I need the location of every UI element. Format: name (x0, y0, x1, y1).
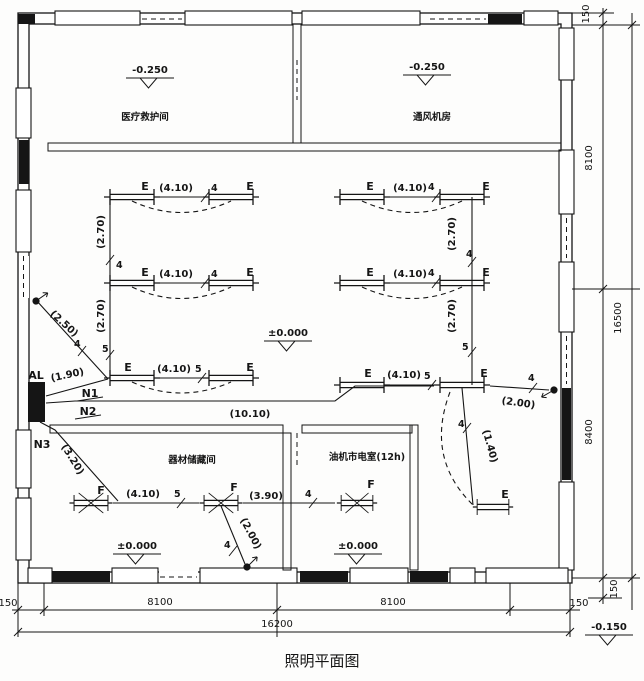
room-name: 医疗救护间 (121, 111, 169, 123)
wire-label: (4.10) (387, 370, 421, 381)
wire-label: (4.10) (393, 269, 427, 280)
dim-value: 150 (609, 579, 620, 598)
lamp-label: E (482, 180, 490, 193)
svg-text:4: 4 (211, 183, 218, 194)
level-value: ±0.000 (268, 328, 308, 339)
wire-label: (4.10) (126, 489, 160, 500)
wire-label: (2.70) (447, 217, 458, 251)
wire-length-labels: (4.10) (4.10) (4.10) (4.10) (4.10) (4.10… (47, 183, 535, 551)
svg-text:4: 4 (466, 249, 473, 260)
lighting-plan-sheet: AL N1 N2 N3 E E E E E E E E E E E E E F … (0, 0, 644, 681)
room-name: 器材储藏间 (167, 454, 216, 466)
dim-value: 8100 (147, 597, 172, 608)
drawing-title: 照明平面图 (284, 652, 359, 670)
wire-label: (4.10) (393, 183, 427, 194)
dim-value: 150 (581, 4, 592, 23)
room-name: 油机市电室(12h) (329, 451, 405, 463)
svg-text:4: 4 (224, 540, 231, 551)
svg-text:4: 4 (458, 419, 465, 430)
lamp-label: E (501, 488, 509, 501)
svg-text:4: 4 (211, 269, 218, 280)
svg-text:4: 4 (428, 268, 435, 279)
wall-light-icon (541, 386, 558, 398)
level-value: -0.250 (409, 62, 445, 73)
wire-label: (10.10) (230, 409, 271, 420)
dim-value: 150 (569, 598, 588, 609)
wire-label: (2.00) (501, 396, 536, 412)
wire-label: (2.70) (96, 299, 107, 333)
lamp-label: E (141, 180, 149, 193)
wire-label: (1.90) (50, 367, 85, 385)
wire-label: (3.90) (249, 491, 283, 502)
circuit-n3-label: N3 (34, 438, 51, 451)
lamp-label: E (480, 367, 488, 380)
level-markers: -0.250 -0.250 ±0.000 ±0.000 ±0.000 -0.15… (113, 62, 633, 645)
svg-text:5: 5 (102, 344, 109, 355)
svg-text:4: 4 (528, 373, 535, 384)
floor-plan-canvas: AL N1 N2 N3 E E E E E E E E E E E E E F … (0, 0, 644, 681)
wire-label: (2.00) (237, 516, 263, 551)
lamp-label: E (364, 367, 372, 380)
wire-label: (4.10) (159, 183, 193, 194)
lamp-label: E (366, 180, 374, 193)
svg-text:4: 4 (116, 260, 123, 271)
dim-value: 8400 (584, 419, 595, 444)
level-value: -0.150 (591, 622, 627, 633)
svg-text:4: 4 (428, 182, 435, 193)
distribution-panel (28, 382, 45, 422)
dim-value: 16200 (261, 619, 293, 630)
dim-value: 16500 (613, 302, 624, 334)
wire-label: (2.70) (447, 299, 458, 333)
lamp-label: E (246, 266, 254, 279)
dim-value: 150 (0, 598, 18, 609)
level-value: -0.250 (132, 65, 168, 76)
svg-text:5: 5 (462, 342, 469, 353)
wire-label: (4.10) (159, 269, 193, 280)
svg-text:5: 5 (174, 489, 181, 500)
lamp-label: E (141, 266, 149, 279)
level-value: ±0.000 (338, 541, 378, 552)
svg-text:4: 4 (74, 339, 81, 350)
svg-text:5: 5 (195, 364, 202, 375)
lamp-label: F (230, 481, 238, 494)
wire-label: (2.50) (47, 309, 79, 340)
panel-label: AL (28, 369, 44, 382)
lamp-label: F (97, 484, 105, 497)
wall-light-icon (31, 292, 49, 305)
room-name: 通风机房 (413, 111, 451, 123)
svg-text:4: 4 (305, 489, 312, 500)
dim-value: 8100 (584, 145, 595, 170)
level-value: ±0.000 (117, 541, 157, 552)
svg-text:5: 5 (424, 371, 431, 382)
lamp-label: E (124, 361, 132, 374)
dim-value: 8100 (380, 597, 405, 608)
lamp-label: F (367, 478, 375, 491)
wire-label: (4.10) (157, 364, 191, 375)
lamp-label: E (482, 266, 490, 279)
lamp-label: E (246, 361, 254, 374)
lamp-label: E (366, 266, 374, 279)
wire-label: (1.40) (480, 429, 499, 465)
lamp-label: E (246, 180, 254, 193)
wire-label: (2.70) (96, 215, 107, 249)
